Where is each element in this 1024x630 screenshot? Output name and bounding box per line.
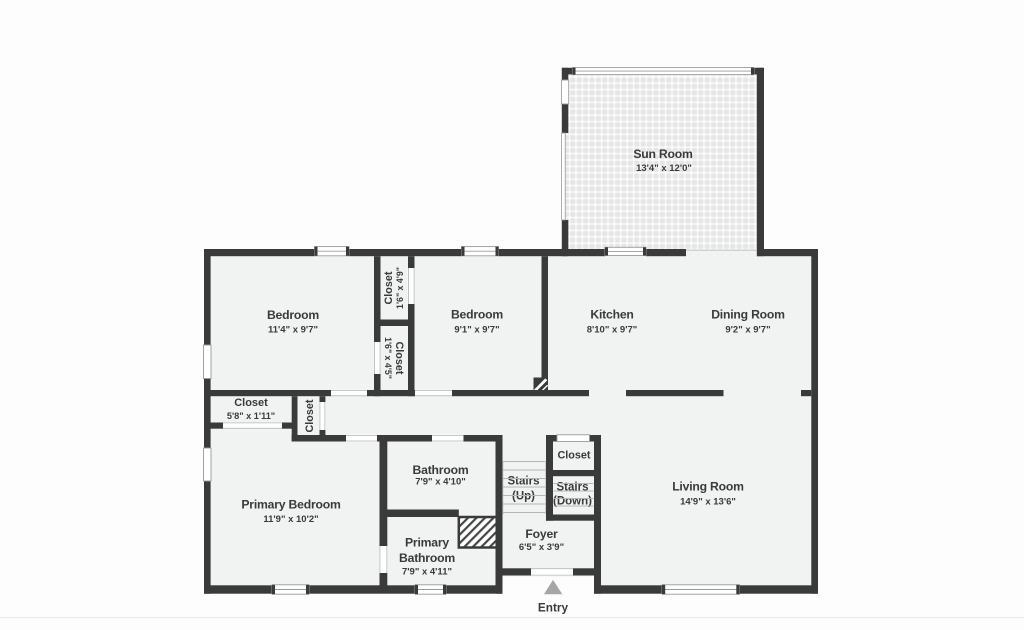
svg-text:11'4" x 9'7": 11'4" x 9'7" bbox=[268, 325, 318, 336]
svg-text:Bedroom: Bedroom bbox=[451, 308, 503, 322]
svg-text:Foyer: Foyer bbox=[525, 527, 558, 541]
svg-text:7'9" x 4'10": 7'9" x 4'10" bbox=[415, 477, 466, 488]
svg-text:13'4" x 12'0": 13'4" x 12'0" bbox=[636, 163, 692, 174]
svg-text:1'6" x 4'9": 1'6" x 4'9" bbox=[395, 267, 405, 309]
svg-text:Closet: Closet bbox=[383, 271, 395, 304]
svg-text:Primary: Primary bbox=[405, 536, 449, 550]
svg-text:Primary Bedroom: Primary Bedroom bbox=[241, 498, 341, 512]
svg-text:Closet: Closet bbox=[393, 342, 405, 375]
svg-text:Stairs: Stairs bbox=[508, 476, 540, 488]
svg-text:Living Room: Living Room bbox=[672, 480, 744, 494]
svg-text:9'1" x 9'7": 9'1" x 9'7" bbox=[454, 325, 499, 336]
svg-text:Kitchen: Kitchen bbox=[590, 308, 633, 322]
svg-text:Closet: Closet bbox=[234, 397, 268, 409]
svg-text:7'9" x 4'11": 7'9" x 4'11" bbox=[402, 567, 452, 578]
svg-text:Bedroom: Bedroom bbox=[267, 308, 319, 322]
svg-text:14'9" x 13'6": 14'9" x 13'6" bbox=[680, 497, 736, 508]
svg-text:(Up): (Up) bbox=[512, 491, 535, 503]
svg-text:Closet: Closet bbox=[558, 450, 591, 462]
svg-text:5'8" x 1'11": 5'8" x 1'11" bbox=[227, 411, 275, 421]
svg-text:6'5" x 3'9": 6'5" x 3'9" bbox=[519, 542, 564, 553]
svg-text:Sun Room: Sun Room bbox=[633, 147, 693, 161]
svg-text:Entry: Entry bbox=[538, 601, 569, 615]
svg-text:8'10" x 9'7": 8'10" x 9'7" bbox=[587, 325, 638, 336]
svg-text:Dining Room: Dining Room bbox=[711, 308, 785, 322]
svg-text:Bathroom: Bathroom bbox=[399, 551, 455, 565]
svg-text:1'6" x 4'5": 1'6" x 4'5" bbox=[383, 337, 393, 379]
svg-text:11'9" x 10'2": 11'9" x 10'2" bbox=[263, 514, 318, 525]
svg-text:9'2" x 9'7": 9'2" x 9'7" bbox=[725, 325, 770, 336]
svg-text:Closet: Closet bbox=[304, 399, 316, 432]
svg-text:Bathroom: Bathroom bbox=[413, 463, 469, 477]
